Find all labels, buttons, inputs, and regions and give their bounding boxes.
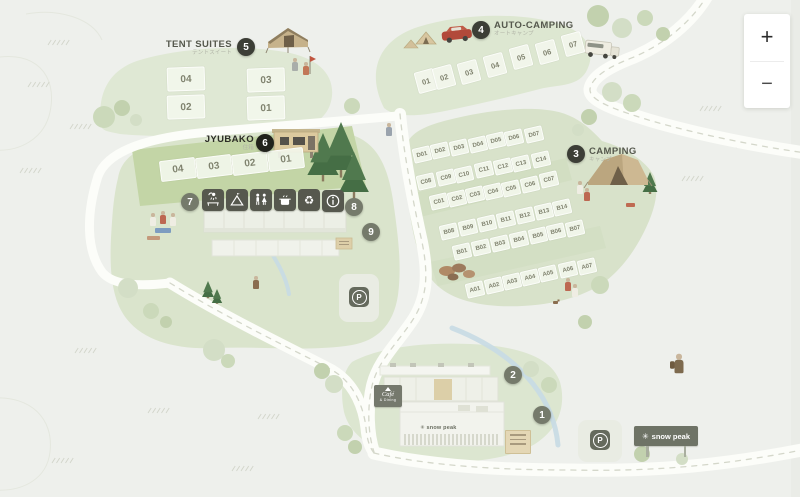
site-D03: D03 <box>449 138 470 157</box>
picnic-table <box>626 203 635 207</box>
restroom-icon <box>250 189 272 211</box>
auto-camping-title: AUTO-CAMPING <box>494 20 574 31</box>
site-03: 03 <box>195 153 233 178</box>
tent-suites-label: TENT SUITES テントスイート <box>128 39 232 57</box>
person-icon <box>292 62 298 71</box>
person-icon <box>386 127 392 136</box>
site-C08: C08 <box>416 172 437 191</box>
person-icon <box>572 288 578 297</box>
site-03: 03 <box>247 67 286 92</box>
site-C13: C13 <box>511 154 532 173</box>
site-B11: B11 <box>496 210 517 229</box>
marker-9[interactable]: 9 <box>362 223 380 241</box>
marker-8[interactable]: 8 <box>345 198 363 216</box>
site-C10: C10 <box>454 165 475 184</box>
person-icon <box>584 192 590 201</box>
marker-4[interactable]: 4 <box>472 21 490 39</box>
shower-icon <box>202 189 224 211</box>
marker-3[interactable]: 3 <box>567 145 585 163</box>
site-02: 02 <box>167 94 206 119</box>
jyubako-label: JYUBAKO 住箱 <box>176 134 254 152</box>
person-icon <box>253 280 259 289</box>
cafe-sign-line1: Café <box>374 391 402 398</box>
site-C05: C05 <box>501 179 522 198</box>
site-D06: D06 <box>504 128 525 147</box>
site-B04: B04 <box>509 230 530 249</box>
site-01: 01 <box>267 146 305 171</box>
person-icon <box>303 66 309 75</box>
marker-5[interactable]: 5 <box>237 38 255 56</box>
site-B09: B09 <box>458 218 479 237</box>
site-C07: C07 <box>539 170 560 189</box>
site-C14: C14 <box>531 150 552 169</box>
camping-title: CAMPING <box>589 146 637 157</box>
site-D07: D07 <box>524 125 545 144</box>
campground-map: TENT SUITES テントスイート AUTO-CAMPING オートキャンプ… <box>0 0 800 497</box>
hiker-icon <box>675 360 684 374</box>
wooden-sign <box>505 430 531 454</box>
site-A07: A07 <box>577 257 598 276</box>
site-B10: B10 <box>477 214 498 233</box>
camping-subtitle: キャンプ <box>589 157 637 164</box>
marker-7[interactable]: 7 <box>181 193 199 211</box>
parking-icon: P <box>590 430 610 450</box>
parking-letter: P <box>352 290 367 305</box>
site-A05: A05 <box>538 264 559 283</box>
jyubako-title: JYUBAKO <box>176 134 254 145</box>
entrance-billboard: ✳ snow peak <box>634 426 698 446</box>
person-icon <box>577 185 583 194</box>
site-B02: B02 <box>471 238 492 257</box>
site-06: 06 <box>534 39 559 65</box>
store-logo: ✳ snow peak <box>420 425 456 431</box>
recycle-icon: ♻ <box>298 189 320 211</box>
person-icon <box>150 217 156 226</box>
site-01: 01 <box>247 95 286 120</box>
marker-1[interactable]: 1 <box>533 406 551 424</box>
svg-text:♻: ♻ <box>304 193 314 207</box>
site-C06: C06 <box>520 175 541 194</box>
camping-label: CAMPING キャンプ <box>589 146 637 164</box>
site-C11: C11 <box>474 160 495 179</box>
site-03: 03 <box>456 59 481 85</box>
site-05: 05 <box>508 44 533 70</box>
site-B03: B03 <box>490 234 511 253</box>
cafe-sign-line2: & Dining <box>374 398 402 402</box>
marker-2[interactable]: 2 <box>504 366 522 384</box>
site-04: 04 <box>167 66 206 91</box>
billboard-text: snow peak <box>652 432 690 441</box>
parking-letter: P <box>593 433 608 448</box>
site-B08: B08 <box>439 222 460 241</box>
tent-suites-title: TENT SUITES <box>128 39 232 50</box>
site-B14: B14 <box>552 198 573 217</box>
zoom-in-button[interactable]: + <box>744 14 790 61</box>
site-B06: B06 <box>546 222 567 241</box>
jyubako-subtitle: 住箱 <box>176 145 254 152</box>
zoom-out-button[interactable]: − <box>744 62 790 109</box>
kitchen-icon <box>274 189 296 211</box>
tent-suites-subtitle: テントスイート <box>128 50 232 57</box>
site-B01: B01 <box>452 242 473 261</box>
parking-icon: P <box>349 287 369 307</box>
site-A01: A01 <box>465 280 486 299</box>
site-D02: D02 <box>430 141 451 160</box>
cafe-sign: Café & Dining <box>374 385 402 407</box>
marker-6[interactable]: 6 <box>256 134 274 152</box>
house-icon <box>226 189 248 211</box>
site-B07: B07 <box>565 219 586 238</box>
snowpeak-asterisk-icon: ✳ <box>642 432 649 441</box>
site-07: 07 <box>560 31 585 57</box>
info-icon <box>322 190 344 212</box>
store-logo-text: snow peak <box>427 425 457 431</box>
site-02: 02 <box>231 150 269 175</box>
site-B12: B12 <box>515 206 536 225</box>
site-A06: A06 <box>558 260 579 279</box>
person-icon <box>170 217 176 226</box>
zoom-control: + − <box>744 14 790 108</box>
site-04: 04 <box>159 156 197 181</box>
person-icon <box>160 215 166 224</box>
site-04: 04 <box>482 52 507 78</box>
picnic-table <box>147 236 160 240</box>
picnic-table <box>155 228 171 233</box>
site-02: 02 <box>431 64 456 90</box>
map-overlay: TENT SUITES テントスイート AUTO-CAMPING オートキャンプ… <box>0 0 800 497</box>
person-icon <box>565 282 571 291</box>
